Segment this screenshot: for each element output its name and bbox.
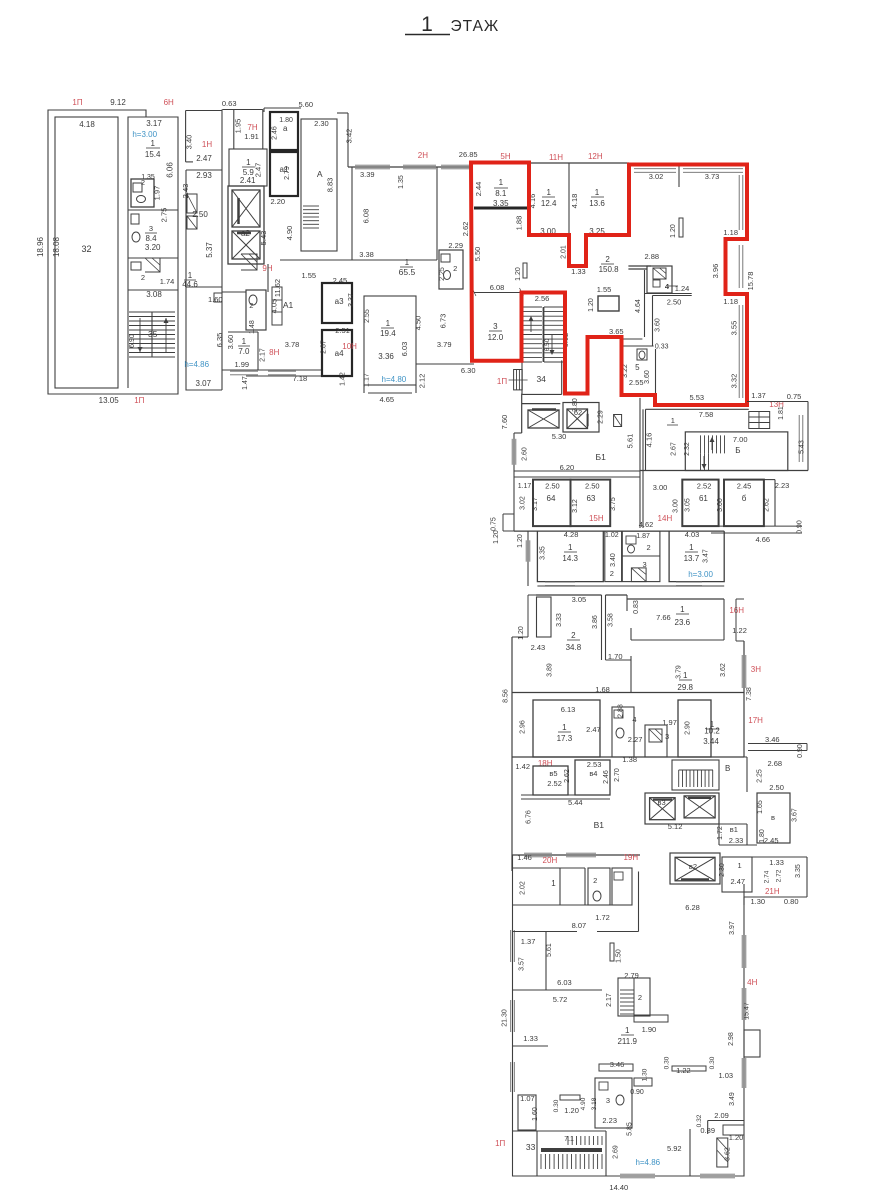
svg-text:в4: в4	[589, 769, 597, 778]
svg-text:4.18: 4.18	[570, 194, 579, 209]
svg-text:62: 62	[574, 408, 582, 417]
svg-text:211.9: 211.9	[617, 1037, 637, 1046]
svg-text:1.37: 1.37	[751, 391, 766, 400]
svg-text:2.02: 2.02	[520, 881, 527, 895]
svg-text:65.5: 65.5	[399, 267, 416, 277]
svg-text:1П: 1П	[72, 98, 82, 107]
svg-text:1.20: 1.20	[670, 224, 677, 238]
svg-text:8Н: 8Н	[269, 348, 279, 357]
svg-text:1.42: 1.42	[339, 372, 346, 386]
svg-text:1.20: 1.20	[515, 267, 522, 281]
svg-text:18.96: 18.96	[36, 236, 45, 257]
svg-text:7.00: 7.00	[733, 435, 748, 444]
svg-text:3Н: 3Н	[751, 665, 761, 674]
svg-text:в5: в5	[549, 769, 557, 778]
svg-text:13.6: 13.6	[589, 199, 605, 208]
svg-text:1.03: 1.03	[718, 1071, 733, 1080]
svg-text:29.8: 29.8	[677, 683, 693, 692]
svg-text:1.42: 1.42	[515, 762, 530, 771]
svg-text:2.88: 2.88	[644, 252, 659, 261]
svg-text:1.81: 1.81	[778, 406, 785, 420]
svg-text:2.55: 2.55	[364, 309, 371, 323]
svg-text:1.33: 1.33	[571, 267, 586, 276]
svg-text:3.00: 3.00	[717, 498, 724, 512]
svg-text:33: 33	[526, 1142, 536, 1152]
svg-text:21.30: 21.30	[501, 1009, 508, 1027]
svg-text:3.44: 3.44	[703, 737, 719, 746]
svg-text:3.60: 3.60	[655, 318, 662, 332]
svg-text:3.78: 3.78	[285, 340, 300, 349]
svg-text:0.83: 0.83	[633, 600, 640, 614]
svg-text:6.03: 6.03	[557, 978, 572, 987]
svg-text:1: 1	[595, 188, 600, 197]
svg-text:10Н: 10Н	[342, 342, 357, 351]
svg-text:a2: a2	[241, 229, 250, 238]
svg-text:1.95: 1.95	[234, 119, 243, 134]
svg-text:3.07: 3.07	[196, 379, 212, 388]
svg-text:2.47: 2.47	[586, 725, 601, 734]
svg-text:1.30: 1.30	[642, 1068, 649, 1081]
svg-text:6.03: 6.03	[400, 342, 409, 357]
svg-text:2.01: 2.01	[560, 245, 567, 259]
svg-text:6.06: 6.06	[166, 162, 175, 178]
svg-text:1Н: 1Н	[202, 140, 212, 149]
svg-text:Б1: Б1	[596, 452, 607, 462]
svg-text:a3: a3	[335, 297, 344, 306]
svg-text:3: 3	[493, 322, 498, 331]
svg-text:2.52: 2.52	[547, 779, 562, 788]
svg-text:3.58: 3.58	[607, 613, 614, 627]
svg-text:5.53: 5.53	[689, 393, 704, 402]
svg-text:3: 3	[606, 1096, 610, 1105]
svg-text:1.65: 1.65	[757, 800, 764, 814]
svg-text:2.45: 2.45	[333, 276, 348, 285]
svg-text:2.62: 2.62	[461, 222, 470, 237]
svg-text:h=3.00: h=3.00	[132, 130, 157, 139]
svg-text:6.76: 6.76	[526, 810, 533, 824]
svg-text:3.75: 3.75	[610, 497, 617, 511]
svg-text:150.8: 150.8	[599, 265, 620, 274]
svg-text:2: 2	[610, 569, 614, 578]
svg-text:14.3: 14.3	[562, 554, 578, 563]
svg-text:1.33: 1.33	[769, 858, 784, 867]
svg-text:3.37: 3.37	[348, 293, 355, 307]
svg-text:12Н: 12Н	[588, 152, 603, 161]
svg-text:23.6: 23.6	[675, 618, 691, 627]
svg-text:1: 1	[738, 861, 742, 870]
svg-text:2.98: 2.98	[728, 1032, 735, 1046]
svg-text:4.62: 4.62	[639, 520, 654, 529]
svg-text:a: a	[283, 124, 288, 133]
svg-text:3.79: 3.79	[676, 665, 683, 679]
svg-text:3.47: 3.47	[702, 549, 709, 563]
svg-text:17.3: 17.3	[557, 734, 573, 743]
svg-text:0.30: 0.30	[664, 1056, 671, 1069]
svg-text:6.50: 6.50	[544, 338, 551, 351]
svg-text:8.83: 8.83	[325, 178, 334, 193]
svg-text:0.80: 0.80	[784, 897, 799, 906]
svg-text:2.09: 2.09	[714, 1111, 729, 1120]
svg-text:3.05: 3.05	[572, 595, 587, 604]
svg-text:7.58: 7.58	[699, 410, 714, 419]
svg-text:3.18: 3.18	[591, 1097, 598, 1110]
svg-text:15Н: 15Н	[589, 514, 604, 523]
svg-text:10.2: 10.2	[704, 727, 720, 736]
svg-text:8.07: 8.07	[572, 921, 587, 930]
svg-text:3.17: 3.17	[532, 497, 539, 511]
svg-text:1.20: 1.20	[729, 1133, 744, 1142]
svg-text:2.33: 2.33	[729, 836, 744, 845]
svg-text:0.90: 0.90	[796, 520, 803, 534]
svg-text:4.64: 4.64	[635, 299, 642, 313]
svg-text:2.90: 2.90	[685, 721, 692, 735]
svg-text:2.72: 2.72	[775, 869, 782, 882]
svg-text:2Н: 2Н	[418, 151, 428, 160]
svg-text:1.80: 1.80	[279, 117, 293, 124]
svg-text:2.53: 2.53	[587, 760, 602, 769]
svg-text:64: 64	[547, 494, 556, 503]
svg-text:14.40: 14.40	[609, 1183, 628, 1192]
svg-text:2.68: 2.68	[767, 759, 782, 768]
svg-text:8.1: 8.1	[495, 189, 507, 198]
svg-text:2.47: 2.47	[254, 163, 263, 178]
svg-text:3.00: 3.00	[673, 499, 680, 513]
svg-text:3.32: 3.32	[730, 374, 739, 389]
svg-text:2.29: 2.29	[448, 241, 463, 250]
svg-text:2.23: 2.23	[602, 1116, 617, 1125]
svg-text:1.20: 1.20	[588, 298, 595, 312]
svg-text:2.62: 2.62	[764, 498, 771, 512]
svg-text:19.4: 19.4	[380, 329, 396, 338]
svg-text:2.52: 2.52	[697, 482, 712, 491]
svg-text:3.97: 3.97	[729, 921, 736, 935]
svg-text:2.51: 2.51	[335, 326, 350, 335]
svg-text:11Н: 11Н	[549, 153, 563, 162]
svg-text:11.62: 11.62	[273, 279, 282, 297]
svg-text:2.70: 2.70	[614, 768, 621, 782]
svg-text:6.90: 6.90	[129, 334, 136, 348]
svg-text:2: 2	[647, 543, 651, 552]
svg-text:Б: Б	[735, 446, 740, 455]
svg-text:2.50: 2.50	[667, 298, 682, 307]
svg-text:5.43: 5.43	[799, 440, 806, 454]
svg-text:1.35: 1.35	[141, 174, 155, 181]
svg-text:4.66: 4.66	[755, 535, 770, 544]
svg-text:2.93: 2.93	[196, 171, 212, 180]
svg-text:h=3.00: h=3.00	[688, 570, 713, 579]
svg-text:3.02: 3.02	[649, 172, 664, 181]
svg-text:2.50: 2.50	[192, 210, 208, 219]
svg-text:1.74: 1.74	[160, 277, 175, 286]
svg-text:6.08: 6.08	[362, 209, 371, 224]
svg-text:0.63: 0.63	[222, 99, 237, 108]
svg-text:18Н: 18Н	[538, 759, 553, 768]
svg-text:34: 34	[536, 374, 546, 384]
svg-text:h=4.86: h=4.86	[184, 360, 209, 369]
svg-text:2.29: 2.29	[598, 410, 605, 424]
svg-text:1: 1	[683, 671, 688, 680]
svg-text:8.4: 8.4	[145, 234, 157, 243]
svg-text:4.18: 4.18	[79, 120, 95, 129]
svg-text:1П: 1П	[497, 377, 507, 386]
svg-text:6.28: 6.28	[685, 903, 700, 912]
svg-text:2: 2	[453, 264, 457, 273]
svg-text:1.47: 1.47	[242, 376, 249, 390]
svg-text:44.6: 44.6	[182, 280, 198, 289]
svg-text:2.46: 2.46	[271, 126, 278, 140]
svg-text:1: 1	[242, 337, 247, 346]
svg-text:1.90: 1.90	[642, 1025, 657, 1034]
svg-text:6Н: 6Н	[164, 98, 174, 107]
svg-text:13.05: 13.05	[99, 396, 120, 405]
svg-text:3.55: 3.55	[730, 321, 739, 336]
svg-text:2.47: 2.47	[196, 154, 212, 163]
svg-text:5.50: 5.50	[473, 247, 482, 262]
svg-text:3.08: 3.08	[146, 290, 162, 299]
svg-text:1.91: 1.91	[244, 132, 259, 141]
svg-text:2.23: 2.23	[775, 481, 790, 490]
svg-text:1.18: 1.18	[723, 297, 738, 306]
svg-text:1.37: 1.37	[521, 937, 536, 946]
svg-text:1.50: 1.50	[616, 949, 623, 963]
svg-text:3.39: 3.39	[360, 170, 375, 179]
svg-text:2.45: 2.45	[764, 836, 779, 845]
svg-text:2.30: 2.30	[314, 119, 329, 128]
svg-text:h=4.80: h=4.80	[382, 375, 407, 384]
svg-text:1: 1	[625, 1026, 630, 1035]
svg-text:0.30: 0.30	[553, 1099, 560, 1112]
svg-text:1.97: 1.97	[153, 186, 162, 201]
svg-text:1.87: 1.87	[636, 533, 650, 540]
svg-text:1.24: 1.24	[675, 284, 690, 293]
svg-text:1.99: 1.99	[234, 360, 249, 369]
svg-text:2: 2	[249, 301, 253, 310]
svg-text:1: 1	[150, 139, 155, 148]
svg-text:63: 63	[586, 494, 595, 503]
svg-text:1П: 1П	[134, 396, 144, 405]
svg-text:3: 3	[149, 224, 153, 233]
svg-text:4.28: 4.28	[564, 530, 579, 539]
svg-text:4.65: 4.65	[379, 395, 394, 404]
svg-text:5.43: 5.43	[259, 231, 268, 246]
svg-text:0.30: 0.30	[709, 1056, 716, 1069]
svg-text:2: 2	[141, 273, 145, 282]
svg-text:1: 1	[386, 319, 391, 328]
svg-text:15.47: 15.47	[743, 1002, 750, 1020]
svg-text:2.43: 2.43	[181, 184, 190, 199]
svg-text:2.25: 2.25	[756, 769, 763, 783]
svg-text:2: 2	[571, 631, 576, 640]
svg-text:1: 1	[671, 416, 675, 425]
svg-text:16Н: 16Н	[729, 606, 744, 615]
svg-text:5.37: 5.37	[205, 242, 214, 258]
svg-text:5: 5	[635, 363, 640, 372]
svg-text:2.50: 2.50	[545, 482, 560, 491]
svg-text:1.20: 1.20	[564, 1106, 579, 1115]
svg-text:1.20: 1.20	[493, 530, 500, 544]
svg-text:h=4.86: h=4.86	[635, 1158, 660, 1167]
svg-text:2: 2	[638, 993, 642, 1002]
svg-text:1: 1	[551, 879, 556, 888]
svg-text:17Н: 17Н	[748, 716, 763, 725]
svg-text:21Н: 21Н	[765, 887, 780, 896]
svg-text:1.72: 1.72	[717, 826, 724, 840]
svg-text:2.50: 2.50	[585, 482, 600, 491]
svg-text:6.73: 6.73	[439, 314, 448, 329]
svg-text:14Н: 14Н	[658, 514, 673, 523]
svg-text:1.38: 1.38	[622, 755, 637, 764]
svg-text:0.33: 0.33	[655, 344, 669, 351]
svg-text:4: 4	[632, 715, 636, 724]
svg-text:12.0: 12.0	[488, 333, 504, 342]
svg-text:3.02: 3.02	[520, 496, 527, 510]
svg-text:15.78: 15.78	[746, 272, 755, 291]
svg-text:2.79: 2.79	[624, 971, 639, 980]
svg-text:7.18: 7.18	[293, 374, 308, 383]
svg-text:3.86: 3.86	[592, 615, 599, 629]
svg-text:1.88: 1.88	[515, 216, 524, 231]
svg-text:4.03: 4.03	[685, 530, 700, 539]
svg-text:2.45: 2.45	[737, 482, 752, 491]
svg-text:4.90: 4.90	[285, 226, 294, 241]
svg-text:ЭТАЖ: ЭТАЖ	[451, 18, 500, 35]
svg-text:1.02: 1.02	[605, 532, 619, 539]
svg-text:2.75: 2.75	[160, 208, 169, 223]
svg-text:2.67: 2.67	[671, 442, 678, 456]
svg-text:0.90: 0.90	[630, 1089, 644, 1096]
svg-text:4.16: 4.16	[644, 433, 653, 448]
svg-text:2.47: 2.47	[730, 877, 745, 886]
svg-text:7.66: 7.66	[656, 613, 671, 622]
svg-text:3.46: 3.46	[765, 735, 780, 744]
svg-text:1: 1	[421, 13, 433, 36]
svg-text:1: 1	[562, 723, 567, 732]
svg-text:5.72: 5.72	[553, 995, 568, 1004]
svg-text:5.92: 5.92	[667, 1144, 682, 1153]
svg-text:1: 1	[246, 158, 251, 167]
svg-text:7.60: 7.60	[500, 415, 509, 430]
svg-text:6.13: 6.13	[561, 705, 576, 714]
svg-text:4Н: 4Н	[747, 978, 757, 987]
svg-text:7.38: 7.38	[746, 687, 753, 701]
svg-text:2.60: 2.60	[521, 447, 528, 461]
svg-text:3.49: 3.49	[729, 1092, 736, 1106]
svg-text:13.7: 13.7	[684, 554, 700, 563]
svg-text:15.4: 15.4	[145, 150, 161, 159]
svg-text:1.60: 1.60	[208, 295, 223, 304]
svg-text:1: 1	[689, 543, 694, 552]
svg-text:5.30: 5.30	[552, 432, 567, 441]
svg-text:34.8: 34.8	[566, 643, 582, 652]
svg-text:2.20: 2.20	[270, 197, 285, 206]
svg-text:3.05: 3.05	[685, 498, 692, 512]
svg-text:в1: в1	[730, 825, 738, 834]
svg-text:1П: 1П	[495, 1139, 505, 1148]
svg-text:1.20: 1.20	[517, 534, 524, 548]
svg-text:3.36: 3.36	[378, 352, 394, 361]
svg-text:5.61: 5.61	[546, 943, 553, 957]
svg-text:2.56: 2.56	[535, 294, 550, 303]
svg-text:32: 32	[81, 244, 91, 254]
svg-text:3.73: 3.73	[705, 172, 720, 181]
svg-text:В1: В1	[594, 820, 605, 830]
svg-text:1.55: 1.55	[301, 271, 316, 280]
svg-text:19Н: 19Н	[623, 853, 638, 862]
svg-text:в3: в3	[658, 798, 666, 807]
svg-text:20Н: 20Н	[543, 856, 558, 865]
svg-text:б: б	[742, 494, 747, 503]
svg-text:A1: A1	[283, 300, 294, 310]
svg-text:3.35: 3.35	[795, 864, 802, 878]
svg-text:1: 1	[546, 188, 551, 197]
svg-text:в: в	[771, 813, 775, 822]
svg-text:3.35: 3.35	[540, 546, 547, 560]
svg-text:3.20: 3.20	[145, 243, 161, 252]
svg-text:12.4: 12.4	[541, 199, 557, 208]
svg-text:4.50: 4.50	[414, 316, 423, 331]
svg-text:1.70: 1.70	[608, 652, 623, 661]
svg-text:2.62: 2.62	[564, 769, 571, 783]
svg-text:2.46: 2.46	[603, 770, 610, 784]
svg-text:2.27: 2.27	[628, 735, 643, 744]
svg-text:1.30: 1.30	[750, 897, 765, 906]
svg-text:3.79: 3.79	[437, 340, 452, 349]
svg-text:2.44: 2.44	[474, 182, 483, 197]
svg-text:5.12: 5.12	[668, 822, 683, 831]
svg-text:61: 61	[699, 494, 708, 503]
svg-text:1: 1	[568, 543, 573, 552]
svg-text:в2: в2	[689, 862, 697, 871]
svg-text:3.35: 3.35	[493, 199, 509, 208]
svg-text:2.69: 2.69	[613, 1145, 620, 1159]
svg-text:3.17: 3.17	[146, 119, 162, 128]
svg-text:2: 2	[605, 255, 610, 264]
svg-text:5Н: 5Н	[500, 152, 510, 161]
svg-text:2.30: 2.30	[719, 863, 726, 877]
svg-text:6.08: 6.08	[490, 283, 505, 292]
svg-text:1.33: 1.33	[523, 1034, 538, 1043]
svg-text:3.40: 3.40	[185, 135, 194, 150]
svg-text:1.35: 1.35	[398, 175, 405, 189]
svg-text:9.12: 9.12	[110, 98, 126, 107]
svg-text:5.61: 5.61	[626, 434, 635, 449]
svg-text:3.38: 3.38	[359, 250, 374, 259]
svg-text:1.22: 1.22	[732, 626, 747, 635]
svg-text:6.35: 6.35	[215, 333, 224, 348]
svg-text:35: 35	[148, 329, 158, 339]
svg-text:0.89: 0.89	[700, 1126, 715, 1135]
svg-text:3.42: 3.42	[345, 129, 354, 144]
svg-text:7.1: 7.1	[564, 1136, 574, 1143]
svg-text:8.56: 8.56	[502, 689, 509, 703]
svg-text:3.60: 3.60	[644, 370, 651, 384]
svg-text:2.74: 2.74	[764, 870, 771, 883]
svg-text:7.0: 7.0	[238, 347, 250, 356]
svg-text:2.96: 2.96	[520, 720, 527, 734]
svg-text:7Н: 7Н	[247, 123, 257, 132]
svg-text:2.12: 2.12	[417, 374, 426, 389]
svg-text:2.17: 2.17	[260, 348, 267, 362]
svg-text:1.20: 1.20	[518, 626, 525, 640]
svg-text:2.17: 2.17	[606, 993, 613, 1007]
svg-text:1: 1	[188, 271, 193, 280]
svg-text:26.85: 26.85	[459, 150, 478, 159]
svg-text:2.79: 2.79	[284, 166, 291, 180]
svg-text:2.43: 2.43	[531, 643, 546, 652]
svg-text:3.65: 3.65	[609, 327, 624, 336]
svg-text:3.57: 3.57	[518, 957, 525, 971]
svg-text:3.67: 3.67	[792, 808, 799, 822]
